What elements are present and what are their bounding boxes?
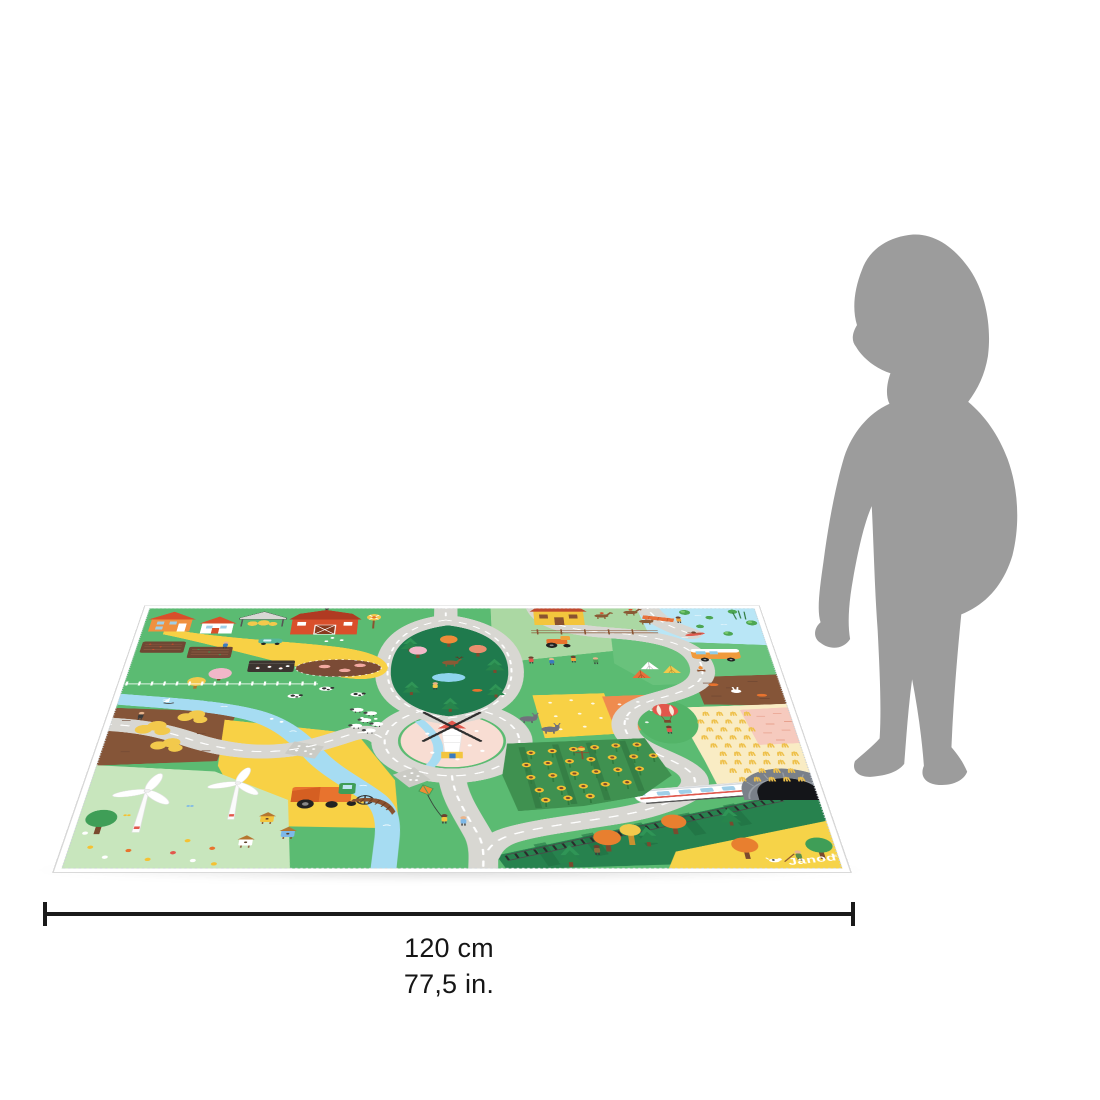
toddler-silhouette (795, 227, 1041, 801)
play-mat: Janod ® (52, 606, 852, 873)
dimension-label-cm: 120 cm (249, 933, 649, 964)
fox-icon (472, 689, 482, 692)
product-photo-stage: Janod ® 120 cm 77,5 in. (0, 0, 1100, 1100)
play-mat-illustration: Janod ® (52, 606, 852, 873)
dimension-line (43, 912, 855, 916)
toddler-silhouette-shape (815, 234, 1017, 785)
stable-icon (529, 608, 589, 625)
forest-pond (432, 673, 465, 682)
chicken-coop-icon (247, 660, 295, 672)
dimension-right-tick (851, 902, 855, 926)
dimension-label-inch: 77,5 in. (249, 969, 649, 1000)
